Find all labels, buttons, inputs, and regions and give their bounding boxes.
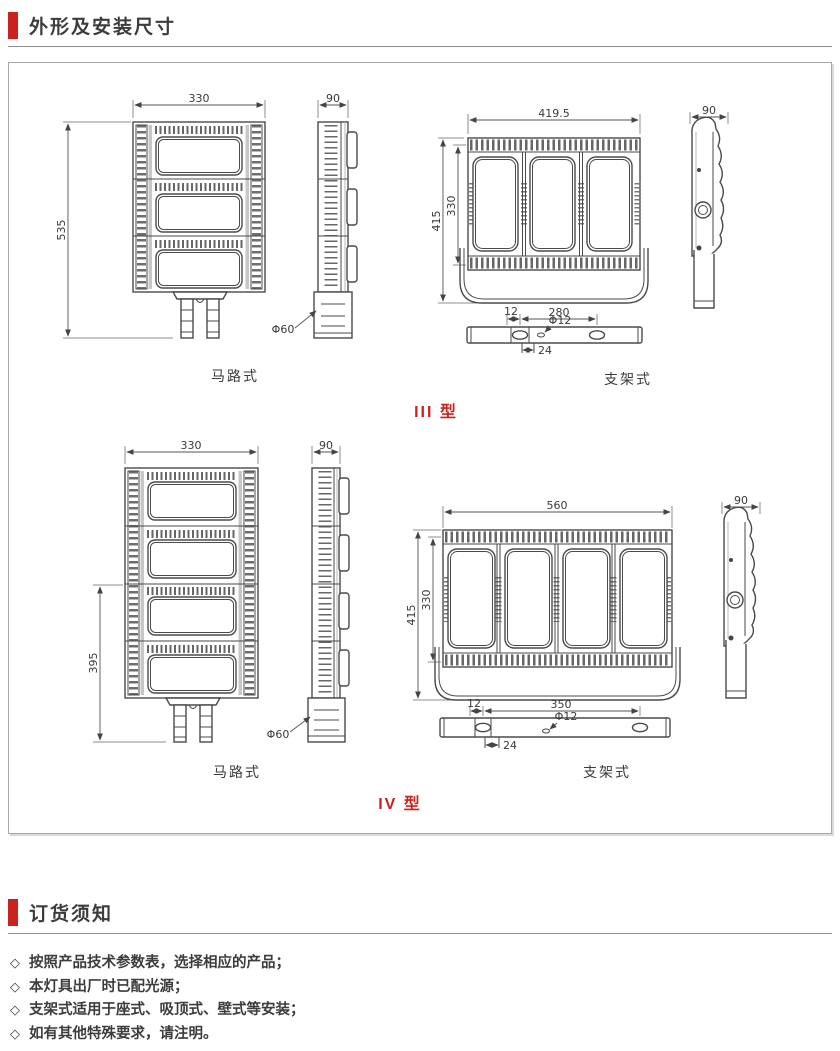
diamond-bullet-icon: ◇: [10, 1002, 20, 1018]
dim-label: 90: [319, 439, 333, 452]
dim-label: 330: [445, 196, 458, 217]
ordering-notes-list: ◇ 按照产品技术参数表，选择相应的产品； ◇ 本灯具出厂时已配光源； ◇ 支架式…: [10, 951, 770, 1045]
dim-front-width: 330: [133, 92, 265, 118]
dim-label: 90: [702, 104, 716, 117]
diamond-bullet-icon: ◇: [10, 955, 20, 971]
front-view: [125, 468, 258, 742]
dim-label: 330: [181, 439, 202, 452]
red-bar-icon: [8, 899, 18, 926]
dim-label: 90: [326, 92, 340, 105]
type3-bracket-side-drawing: 90: [663, 98, 758, 333]
dim-label: 24: [538, 344, 552, 357]
type3-bracket-label: 支架式: [586, 369, 670, 389]
dim-body-height: 330: [445, 145, 466, 265]
red-bar-icon: [8, 12, 18, 39]
dim-front-width: 419.5: [468, 107, 640, 134]
dim-body-height: 330: [420, 537, 441, 662]
dim-front-width: 330: [125, 439, 258, 464]
front-view: [435, 530, 680, 700]
pole-dia-label: Φ60: [272, 323, 295, 336]
dim-label: 560: [547, 499, 568, 512]
dim-label: 12: [467, 697, 481, 710]
type3-bracket-drawing: 419.5 415 330: [403, 98, 663, 360]
dim-label: 419.5: [538, 107, 570, 120]
dim-label: 24: [503, 739, 517, 752]
mount-bar-view: 12 350 Φ12 24: [440, 697, 670, 752]
type4-road-label: 马路式: [195, 762, 279, 782]
dim-label: 12: [504, 305, 518, 318]
ordering-note: ◇ 如有其他特殊要求，请注明。: [10, 1022, 770, 1046]
ordering-note: ◇ 按照产品技术参数表，选择相应的产品；: [10, 951, 770, 975]
type4-bracket-label: 支架式: [565, 762, 649, 782]
type4-bracket-side-drawing: 90: [695, 488, 790, 723]
dim-label: 535: [55, 220, 68, 241]
type4-title: IV 型: [348, 790, 452, 814]
dim-label: 90: [734, 494, 748, 507]
ordering-note-text: 本灯具出厂时已配光源；: [29, 975, 189, 996]
dim-label: Φ12: [555, 710, 578, 723]
dimensions-section-header: 外形及安装尺寸: [8, 12, 832, 47]
ordering-note: ◇ 本灯具出厂时已配光源；: [10, 975, 770, 999]
ordering-section-header: 订货须知: [8, 899, 832, 934]
side-view: 90 Φ60: [272, 92, 357, 338]
ordering-section-title: 订货须知: [29, 899, 113, 926]
type3-road-label: 马路式: [193, 366, 277, 386]
type3-road-drawing: 330 535: [55, 90, 395, 348]
type3-title: III 型: [384, 398, 488, 422]
dim-label: 330: [420, 590, 433, 611]
diamond-bullet-icon: ◇: [10, 979, 20, 995]
dim-label: 330: [189, 92, 210, 105]
pole-dia-label: Φ60: [267, 728, 290, 741]
front-view: [460, 138, 648, 303]
ordering-note-text: 按照产品技术参数表，选择相应的产品；: [29, 951, 290, 972]
type4-road-drawing: 330 395: [48, 438, 393, 758]
ordering-note: ◇ 支架式适用于座式、吸顶式、壁式等安装；: [10, 998, 770, 1022]
side-profile: [692, 117, 724, 308]
dim-label: 415: [430, 211, 443, 232]
dimensions-section-title: 外形及安装尺寸: [29, 12, 176, 39]
ordering-note-text: 支架式适用于座式、吸顶式、壁式等安装；: [29, 998, 305, 1019]
side-profile: [724, 507, 756, 698]
diamond-bullet-icon: ◇: [10, 1026, 20, 1042]
front-view: [133, 122, 265, 338]
dim-label: Φ12: [549, 314, 572, 327]
side-view: 90 Φ60: [267, 439, 349, 742]
dim-label: 415: [405, 605, 418, 626]
dim-label: 395: [87, 653, 100, 674]
type4-bracket-drawing: 560 415 330: [396, 492, 696, 757]
ordering-note-text: 如有其他特殊要求，请注明。: [29, 1022, 218, 1043]
mount-bar-view: 12 280 Φ12 24: [467, 305, 642, 357]
dim-front-width: 560: [443, 499, 672, 528]
